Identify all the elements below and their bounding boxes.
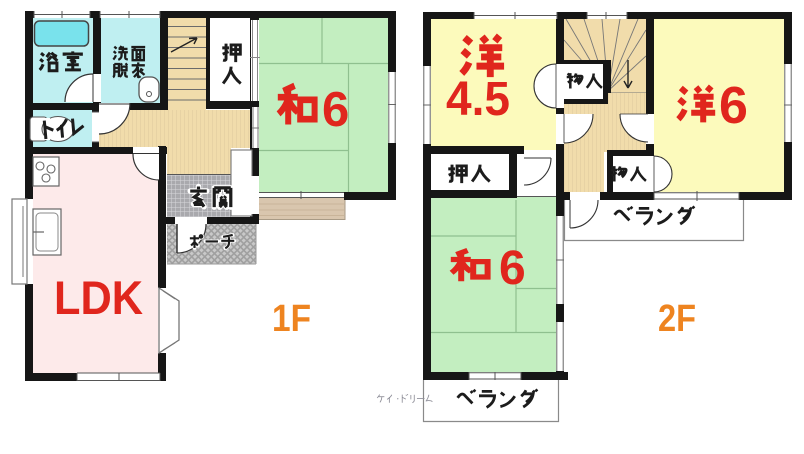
svg-text:2F: 2F (658, 298, 696, 340)
svg-text:LDK: LDK (54, 271, 143, 324)
svg-text:6: 6 (499, 242, 526, 295)
svg-text:6: 6 (322, 83, 349, 137)
svg-text:6: 6 (719, 77, 748, 135)
svg-text:4.5: 4.5 (446, 73, 510, 126)
svg-text:1F: 1F (272, 298, 311, 340)
